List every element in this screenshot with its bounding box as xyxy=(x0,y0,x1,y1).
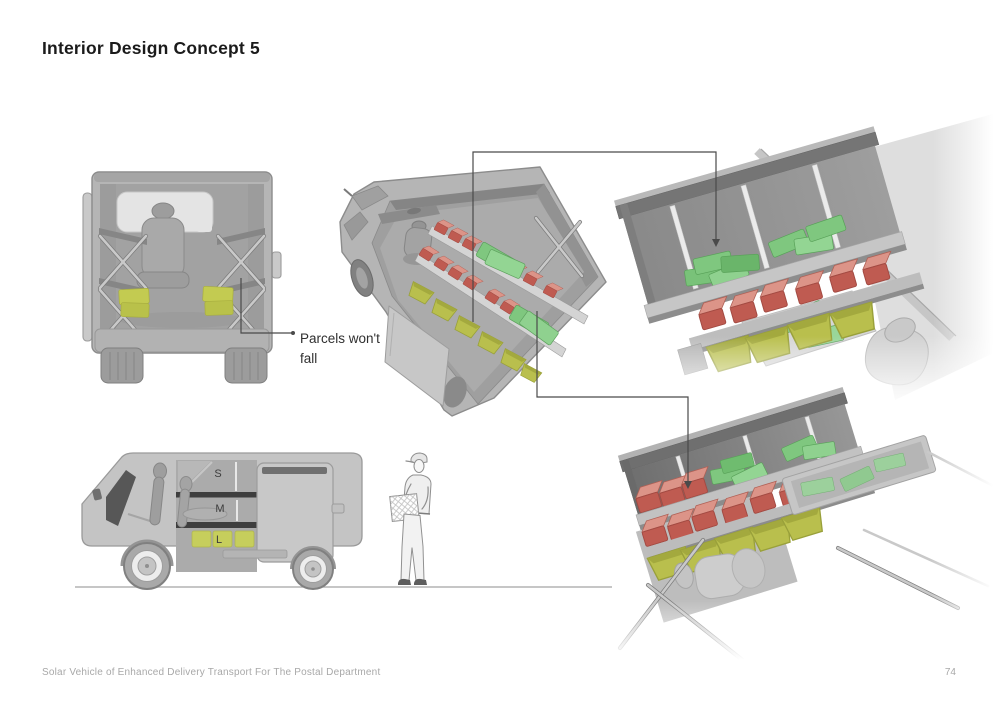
postal-worker-figure xyxy=(390,453,431,585)
shelf-band-ml xyxy=(176,522,257,528)
front-wheel-right xyxy=(225,348,267,383)
side-view-illustration: S M L xyxy=(75,453,612,589)
legs xyxy=(401,514,424,581)
size-label-l: L xyxy=(216,534,222,546)
rear-wheel xyxy=(292,548,334,589)
size-label-s: S xyxy=(214,468,221,480)
footer-text: Solar Vehicle of Enhanced Delivery Trans… xyxy=(42,667,380,678)
concept-illustration: S M L xyxy=(0,0,1000,708)
slide-page: Interior Design Concept 5 xyxy=(0,0,1000,708)
sliding-door xyxy=(257,463,344,562)
front-wheel xyxy=(123,542,172,590)
door-handle xyxy=(332,504,344,513)
l-compartment-bins xyxy=(192,531,254,547)
roof-edge xyxy=(94,173,270,182)
size-label-m: M xyxy=(215,503,224,515)
parcel-note-line2: fall xyxy=(300,351,317,366)
right-mirror xyxy=(272,252,281,278)
head xyxy=(414,460,424,473)
mirror-arm xyxy=(344,189,352,196)
leader-dot xyxy=(291,331,295,335)
left-door-edge xyxy=(83,193,92,341)
shoe xyxy=(414,579,427,585)
side-step xyxy=(223,550,287,558)
front-view-illustration xyxy=(83,172,281,383)
parcel-note-line1: Parcels won't xyxy=(300,331,380,346)
front-wheel-left xyxy=(101,348,143,383)
page-number: 74 xyxy=(945,667,956,678)
